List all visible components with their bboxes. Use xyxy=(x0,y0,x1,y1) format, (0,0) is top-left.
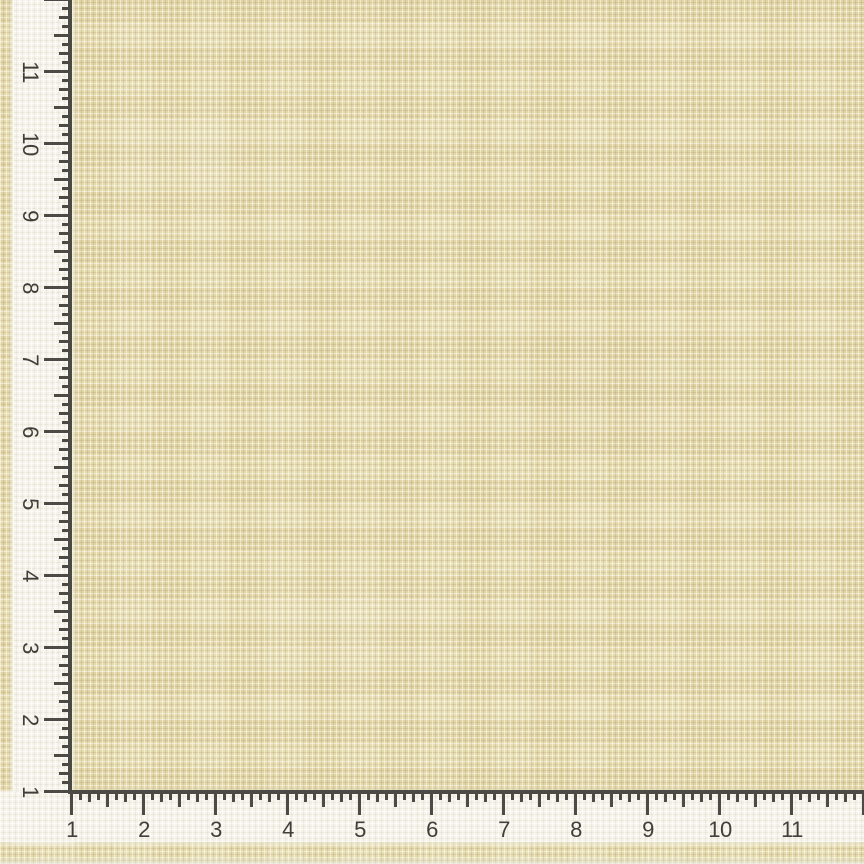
ruler-tick xyxy=(62,43,72,46)
left-ruler-number-4: 4 xyxy=(16,562,44,590)
ruler-tick xyxy=(59,520,72,523)
ruler-tick xyxy=(439,791,442,800)
ruler-tick xyxy=(62,637,72,640)
ruler-tick xyxy=(54,682,72,685)
ruler-tick xyxy=(727,791,730,800)
bottom-ruler-number-7: 7 xyxy=(483,816,525,844)
ruler-tick xyxy=(62,673,72,676)
ruler-tick xyxy=(736,791,739,802)
ruler-tick xyxy=(54,538,72,541)
ruler-tick xyxy=(44,574,72,577)
left-ruler-number-8: 8 xyxy=(16,274,44,302)
ruler-tick xyxy=(62,529,72,532)
ruler-tick xyxy=(853,791,856,800)
ruler-tick xyxy=(59,628,72,631)
bottom-ruler-number-2: 2 xyxy=(123,816,165,844)
ruler-tick xyxy=(62,385,72,388)
ruler-tick xyxy=(54,178,72,181)
ruler-tick xyxy=(277,791,280,800)
ruler-tick xyxy=(54,610,72,613)
burlap-fabric xyxy=(0,0,864,864)
left-ruler-number-6: 6 xyxy=(16,418,44,446)
ruler-tick xyxy=(59,52,72,55)
ruler-tick xyxy=(59,88,72,91)
ruler-tick xyxy=(62,691,72,694)
left-ruler-number-9: 9 xyxy=(16,202,44,230)
ruler-tick xyxy=(44,142,72,145)
ruler-tick xyxy=(44,286,72,289)
ruler-tick xyxy=(54,322,72,325)
ruler-tick xyxy=(54,106,72,109)
ruler-tick xyxy=(358,791,361,815)
ruler-tick xyxy=(133,791,136,800)
ruler-tick xyxy=(304,791,307,802)
ruler-tick xyxy=(59,664,72,667)
ruler-tick xyxy=(62,439,72,442)
bottom-ruler-number-11: 11 xyxy=(771,816,813,844)
ruler-tick xyxy=(62,7,72,10)
ruler-tick xyxy=(62,133,72,136)
ruler-tick xyxy=(54,754,72,757)
ruler-tick xyxy=(62,709,72,712)
ruler-tick xyxy=(691,791,694,800)
ruler-tick xyxy=(59,232,72,235)
ruler-tick xyxy=(844,791,847,802)
ruler-tick xyxy=(574,791,577,815)
ruler-tick xyxy=(124,791,127,802)
ruler-tick xyxy=(59,304,72,307)
ruler-tick xyxy=(313,791,316,800)
ruler-tick xyxy=(232,791,235,802)
ruler-tick xyxy=(187,791,190,800)
left-ruler-number-3: 3 xyxy=(16,634,44,662)
ruler-tick xyxy=(59,700,72,703)
ruler-tick xyxy=(59,160,72,163)
ruler-tick xyxy=(62,727,72,730)
ruler-tick xyxy=(475,791,478,800)
ruler-tick xyxy=(376,791,379,802)
ruler-tick xyxy=(62,313,72,316)
ruler-tick xyxy=(115,791,118,800)
left-ruler-number-2: 2 xyxy=(16,706,44,734)
left-ruler-number-5: 5 xyxy=(16,490,44,518)
ruler-tick xyxy=(54,250,72,253)
ruler-tick xyxy=(664,791,667,802)
bottom-ruler-number-5: 5 xyxy=(339,816,381,844)
ruler-tick xyxy=(745,791,748,800)
ruler-tick xyxy=(62,169,72,172)
ruler-tick xyxy=(646,791,649,815)
ruler-tick xyxy=(59,16,72,19)
ruler-tick xyxy=(799,791,802,800)
ruler-tick xyxy=(700,791,703,802)
ruler-tick xyxy=(601,791,604,800)
left-ruler-number-11: 11 xyxy=(16,58,44,86)
ruler-tick xyxy=(565,791,568,800)
ruler-tick xyxy=(62,763,72,766)
ruler-tick xyxy=(268,791,271,802)
ruler-tick xyxy=(62,79,72,82)
ruler-tick xyxy=(286,791,289,815)
ruler-tick xyxy=(430,791,433,815)
ruler-tick xyxy=(502,791,505,815)
ruler-tick xyxy=(79,791,82,800)
ruler-tick xyxy=(44,718,72,721)
ruler-tick xyxy=(214,791,217,815)
bottom-ruler-number-8: 8 xyxy=(555,816,597,844)
ruler-tick xyxy=(385,791,388,800)
bottom-ruler-number-6: 6 xyxy=(411,816,453,844)
ruler-tick xyxy=(178,791,181,807)
ruler-tick xyxy=(394,791,397,807)
ruler-tick xyxy=(62,187,72,190)
ruler-tick xyxy=(493,791,496,800)
ruler-tick xyxy=(62,457,72,460)
ruler-tick xyxy=(322,791,325,807)
ruler-tick xyxy=(59,772,72,775)
ruler-tick xyxy=(59,196,72,199)
ruler-tick xyxy=(44,646,72,649)
ruler-tick xyxy=(62,547,72,550)
ruler-tick xyxy=(44,790,72,793)
ruler-tick xyxy=(62,349,72,352)
ruler-tick xyxy=(59,124,72,127)
ruler-tick xyxy=(62,97,72,100)
ruler-tick xyxy=(62,331,72,334)
ruler-tick xyxy=(62,583,72,586)
ruler-tick xyxy=(718,791,721,815)
bottom-ruler-number-10: 10 xyxy=(699,816,741,844)
ruler-tick xyxy=(223,791,226,800)
ruler-tick xyxy=(106,791,109,807)
ruler-tick xyxy=(62,241,72,244)
ruler-tick xyxy=(59,412,72,415)
left-ruler-number-7: 7 xyxy=(16,346,44,374)
ruler-tick xyxy=(54,394,72,397)
ruler-tick xyxy=(44,214,72,217)
ruler-tick xyxy=(457,791,460,800)
ruler-tick xyxy=(790,791,793,815)
ruler-tick xyxy=(59,376,72,379)
ruler-tick xyxy=(754,791,757,807)
ruler-tick xyxy=(817,791,820,800)
ruler-tick xyxy=(62,781,72,784)
ruler-tick xyxy=(538,791,541,807)
ruler-tick xyxy=(583,791,586,800)
ruler-tick xyxy=(520,791,523,802)
ruler-tick xyxy=(59,484,72,487)
ruler-tick xyxy=(62,151,72,154)
ruler-tick xyxy=(62,475,72,478)
ruler-tick xyxy=(808,791,811,802)
ruler-tick xyxy=(655,791,658,800)
ruler-tick xyxy=(62,655,72,658)
ruler-tick xyxy=(62,61,72,64)
ruler-tick xyxy=(59,340,72,343)
ruler-tick xyxy=(160,791,163,802)
bottom-ruler-number-4: 4 xyxy=(267,816,309,844)
ruler-tick xyxy=(259,791,262,800)
ruler-tick xyxy=(44,430,72,433)
ruler-tick xyxy=(556,791,559,802)
ruler-tick xyxy=(151,791,154,800)
bottom-ruler-number-3: 3 xyxy=(195,816,237,844)
ruler-tick xyxy=(142,791,145,815)
ruler-tick xyxy=(62,295,72,298)
ruler-tick xyxy=(59,592,72,595)
ruler-tick xyxy=(62,259,72,262)
ruler-tick xyxy=(241,791,244,800)
left-ruler-number-1: 1 xyxy=(16,778,44,806)
ruler-tick xyxy=(59,736,72,739)
ruler-tick xyxy=(709,791,712,800)
fabric-swatch-photo: 1234567891011 1234567891011 xyxy=(0,0,864,864)
ruler-tick xyxy=(349,791,352,800)
ruler-tick xyxy=(637,791,640,800)
ruler-tick xyxy=(62,223,72,226)
ruler-tick xyxy=(403,791,406,800)
ruler-tick xyxy=(62,277,72,280)
ruler-tick xyxy=(628,791,631,802)
ruler-tick xyxy=(62,565,72,568)
ruler-tick xyxy=(772,791,775,802)
ruler-tick xyxy=(62,745,72,748)
ruler-tick xyxy=(62,403,72,406)
ruler-tick xyxy=(205,791,208,800)
ruler-tick xyxy=(682,791,685,807)
left-ruler-number-10: 10 xyxy=(16,130,44,158)
ruler-tick xyxy=(781,791,784,800)
ruler-tick xyxy=(62,493,72,496)
ruler-tick xyxy=(511,791,514,800)
ruler-tick xyxy=(835,791,838,800)
ruler-tick xyxy=(62,601,72,604)
bottom-ruler-number-1: 1 xyxy=(51,816,93,844)
ruler-tick xyxy=(44,0,72,1)
ruler-tick xyxy=(59,268,72,271)
ruler-tick xyxy=(62,367,72,370)
ruler-tick xyxy=(54,34,72,37)
ruler-tick xyxy=(97,791,100,800)
ruler-tick xyxy=(44,358,72,361)
ruler-tick xyxy=(673,791,676,800)
ruler-tick xyxy=(421,791,424,800)
ruler-tick xyxy=(62,619,72,622)
ruler-tick xyxy=(62,421,72,424)
ruler-tick xyxy=(484,791,487,802)
ruler-tick xyxy=(62,205,72,208)
ruler-tick xyxy=(88,791,91,802)
ruler-tick xyxy=(412,791,415,802)
ruler-tick xyxy=(250,791,253,807)
ruler-tick xyxy=(62,511,72,514)
ruler-tick xyxy=(54,466,72,469)
ruler-tick xyxy=(44,502,72,505)
ruler-tick xyxy=(592,791,595,802)
ruler-tick xyxy=(340,791,343,802)
ruler-tick xyxy=(59,556,72,559)
ruler-tick xyxy=(826,791,829,807)
ruler-tick xyxy=(331,791,334,800)
photo-bottom-edge xyxy=(0,857,864,864)
ruler-tick xyxy=(169,791,172,800)
ruler-tick xyxy=(610,791,613,807)
ruler-tick xyxy=(295,791,298,800)
ruler-tick xyxy=(196,791,199,802)
ruler-tick xyxy=(70,791,73,815)
ruler-tick xyxy=(529,791,532,800)
ruler-tick xyxy=(763,791,766,800)
ruler-tick xyxy=(547,791,550,800)
ruler-tick xyxy=(44,70,72,73)
ruler-tick xyxy=(62,25,72,28)
ruler-tick xyxy=(367,791,370,800)
ruler-tick xyxy=(448,791,451,802)
ruler-tick xyxy=(62,115,72,118)
ruler-tick xyxy=(619,791,622,800)
ruler-tick xyxy=(59,448,72,451)
ruler-tick xyxy=(466,791,469,807)
bottom-ruler-number-9: 9 xyxy=(627,816,669,844)
